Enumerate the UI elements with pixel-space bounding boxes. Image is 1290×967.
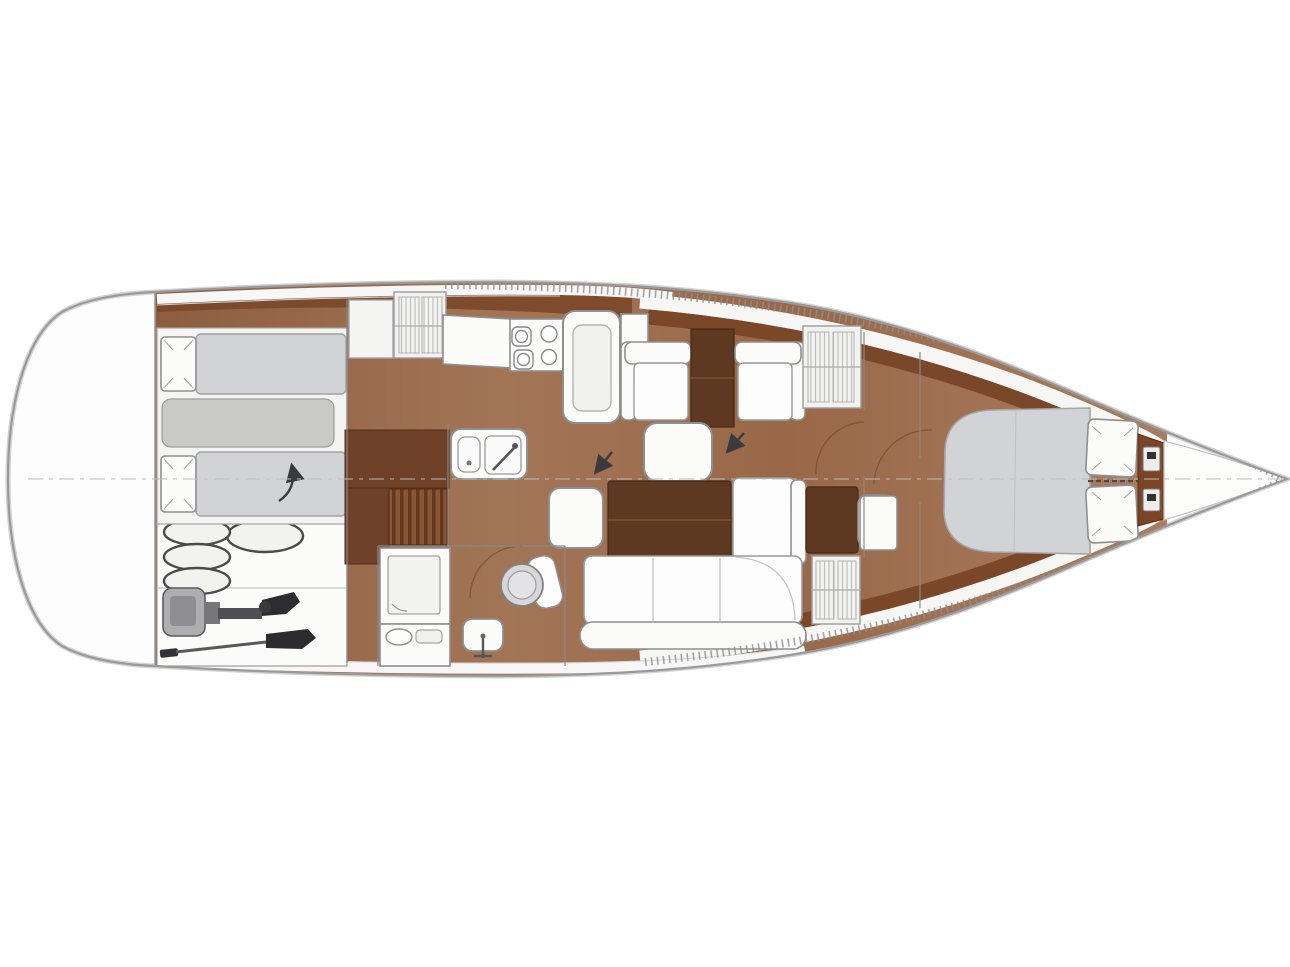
fridge [563,311,620,423]
anchor-locker [1164,441,1286,520]
stove [510,319,568,371]
side-table-forward [806,487,858,553]
forward-pillow-top [1086,419,1139,478]
shower-cabin [380,548,450,624]
dining-table [608,481,731,559]
louvered-hanging-locker [389,489,447,545]
armchair-right [735,342,805,420]
settee-corner-seat [733,478,806,566]
stacked-fenders [164,519,230,594]
top-louvered-locker [394,292,446,358]
louvered-locker-low [812,556,860,624]
round-fender [227,520,303,552]
burner [541,326,557,342]
coffee-table [644,423,712,481]
yacht-floorplan [0,0,1290,967]
burner [542,350,557,365]
double-sink [451,429,527,479]
aft-pillow-top [161,337,196,391]
bedside-locker [860,496,897,550]
aft-pillow-bottom [161,456,196,512]
settee [580,556,806,649]
mattress-bottom [196,452,346,516]
vanity [380,624,450,666]
armchair-left [621,342,691,420]
island-berth [944,408,1090,554]
side-table [691,329,734,427]
backrest-infill [162,399,334,447]
settee-backrest [580,622,806,649]
mattress-top [196,334,346,394]
forward-pillow-bottom [1086,485,1139,544]
floorplan-canvas [0,0,1290,967]
galley-counter [443,315,512,368]
louvered-cabinet [803,326,861,408]
counter-top-aft [349,300,393,358]
stool-seat [549,488,603,548]
lazarette [157,519,347,666]
aft-cabin [157,328,347,524]
